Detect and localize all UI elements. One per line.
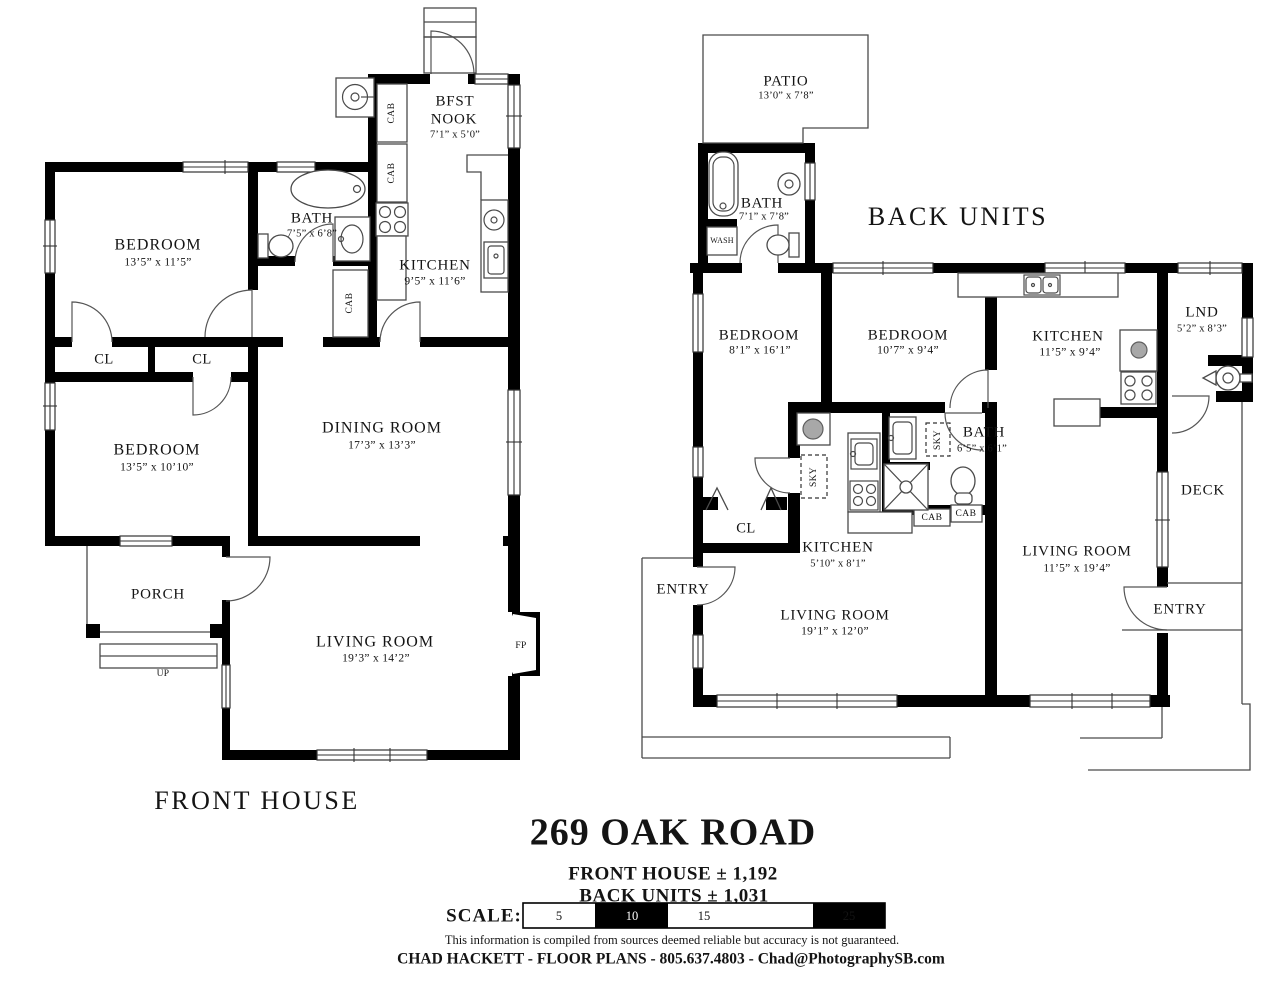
label-wash: WASH <box>710 236 733 245</box>
room-dims-kitchen2: 11’5” x 9’4” <box>1039 347 1100 359</box>
label-cab: CAB <box>921 513 942 523</box>
room-dims-kitchen1: 5’10” x 8’1” <box>810 558 866 569</box>
label-cab: CAB <box>387 162 397 183</box>
counter <box>848 512 912 533</box>
room-label-bath1: BATH <box>741 195 783 211</box>
room-dims-bath1: 7’1” x 7’8” <box>739 211 789 222</box>
room-label-bedroom2: BEDROOM <box>113 442 200 459</box>
room-label-bedroom2: BEDROOM <box>868 327 949 343</box>
room-label-kitchen2: KITCHEN <box>1032 328 1103 344</box>
room-dims-bedroom2: 10’7” x 9’4” <box>877 345 939 357</box>
kitchen-sink-icon <box>484 242 508 278</box>
room-label-porch: PORCH <box>131 586 185 602</box>
label-sky: SKY <box>809 467 819 487</box>
door-arc-porch-entry <box>226 557 270 601</box>
rear-landing <box>424 37 476 73</box>
front-house: BEDROOM 13’5” x 11’5” BATH 7’5” x 6’8” B… <box>43 8 540 815</box>
door-arc-closet1 <box>72 302 112 342</box>
door-arc-kitchen-dining <box>380 302 420 342</box>
door-arc-lnd <box>1172 396 1209 433</box>
room-dims-kitchen: 9’5” x 11’6” <box>404 276 465 288</box>
counter <box>1054 399 1100 426</box>
fridge-icon <box>1120 330 1157 371</box>
door-arc-bedroom1 <box>755 458 790 493</box>
room-dims-dining: 17’3” x 13’3” <box>348 440 416 452</box>
room-label-lnd: LND <box>1185 304 1218 320</box>
porch-post <box>86 624 100 638</box>
room-dims-living1: 19’1” x 12’0” <box>801 626 869 638</box>
bath-sink-icon <box>335 217 370 261</box>
room-dims-bedroom2: 13’5” x 10’10” <box>120 462 194 474</box>
nook-counter <box>467 155 508 200</box>
label-cab: CAB <box>387 102 397 123</box>
room-dims-bedroom1: 8’1” x 16’1” <box>729 345 791 357</box>
room-dims-lnd: 5’2” x 8’3” <box>1177 323 1227 334</box>
water-heater-icon <box>336 78 374 117</box>
scale-tick-25: 25 <box>843 909 856 923</box>
door-arc-bedroom1 <box>205 290 252 337</box>
front-area-text: FRONT HOUSE ± 1,192 <box>568 863 778 884</box>
stove-icon <box>1121 372 1156 404</box>
room-label-bedroom1: BEDROOM <box>114 237 201 254</box>
front-house-windows <box>43 74 522 762</box>
room-label-entry-left: ENTRY <box>656 581 709 597</box>
room-dims-bath: 7’5” x 6’8” <box>287 228 337 239</box>
room-label-closet2: CL <box>192 351 212 367</box>
room-label-dining: DINING ROOM <box>322 420 442 437</box>
bath-sink-icon <box>889 417 917 459</box>
stove-icon <box>376 203 408 236</box>
room-label-nook: NOOK <box>431 111 478 127</box>
scale-tick-10: 10 <box>626 909 639 923</box>
room-dims-bfst: 7’1” x 5’0” <box>430 129 480 140</box>
room-label-entry-right: ENTRY <box>1153 601 1206 617</box>
room-dims-patio: 13’0” x 7’8” <box>758 90 814 101</box>
back-units-title: BACK UNITS <box>868 202 1048 231</box>
room-label-patio: PATIO <box>763 73 808 89</box>
scale-tick-20: 20 <box>771 909 784 923</box>
label-sky: SKY <box>933 430 943 450</box>
room-label-kitchen: KITCHEN <box>399 257 470 273</box>
floor-plan-page: BEDROOM 13’5” x 11’5” BATH 7’5” x 6’8” B… <box>0 0 1280 989</box>
front-house-title: FRONT HOUSE <box>154 786 359 815</box>
room-label-bfst: BFST <box>435 93 474 109</box>
footer: 269 OAK ROAD FRONT HOUSE ± 1,192 BACK UN… <box>397 812 945 968</box>
label-cab: CAB <box>955 509 976 519</box>
room-label-bath2: BATH <box>963 424 1005 440</box>
back-units-doors <box>697 225 1209 630</box>
room-label-closet: CL <box>736 520 756 536</box>
label-fireplace: FP <box>515 641 526 651</box>
room-dims-bath2: 6’5” x 6’1” <box>957 443 1007 454</box>
scale-tick-15: 15 <box>698 909 711 923</box>
porch-post <box>210 624 224 638</box>
room-label-living1: LIVING ROOM <box>780 607 889 623</box>
burner-icon <box>803 419 823 439</box>
label-up: UP <box>157 669 170 679</box>
scale-label: SCALE: <box>446 905 522 926</box>
door-arc-bedroom2-closet <box>193 377 231 415</box>
room-label-kitchen1: KITCHEN <box>802 539 873 555</box>
front-house-doors <box>72 31 474 601</box>
back-units: PATIO 13’0” x 7’8” BATH 7’1” x 7’8” WASH… <box>642 35 1253 770</box>
toilet-icon <box>789 233 799 257</box>
address-title: 269 OAK ROAD <box>530 812 816 854</box>
room-label-bedroom1: BEDROOM <box>719 327 800 343</box>
room-label-bath: BATH <box>291 210 333 226</box>
room-label-closet1: CL <box>94 351 114 367</box>
label-cab: CAB <box>345 292 355 313</box>
bath-sink-icon <box>778 173 800 195</box>
scale-bar: 5 10 15 20 25 <box>523 903 885 928</box>
room-dims-living: 19’3” x 14’2” <box>342 653 410 665</box>
room-label-living: LIVING ROOM <box>316 634 434 651</box>
floor-plan-canvas: BEDROOM 13’5” x 11’5” BATH 7’5” x 6’8” B… <box>0 0 1280 989</box>
shower-icon <box>884 464 928 510</box>
room-label-deck: DECK <box>1181 482 1225 498</box>
disclaimer-text: This information is compiled from source… <box>445 933 899 947</box>
room-dims-bedroom1: 13’5” x 11’5” <box>124 257 191 269</box>
toilet-icon <box>951 467 975 504</box>
scale-tick-5: 5 <box>556 909 562 923</box>
credit-text: CHAD HACKETT - FLOOR PLANS - 805.637.480… <box>397 951 945 968</box>
front-house-walls <box>45 74 540 760</box>
room-label-living2: LIVING ROOM <box>1022 543 1131 559</box>
room-dims-living2: 11’5” x 19’4” <box>1043 563 1110 575</box>
